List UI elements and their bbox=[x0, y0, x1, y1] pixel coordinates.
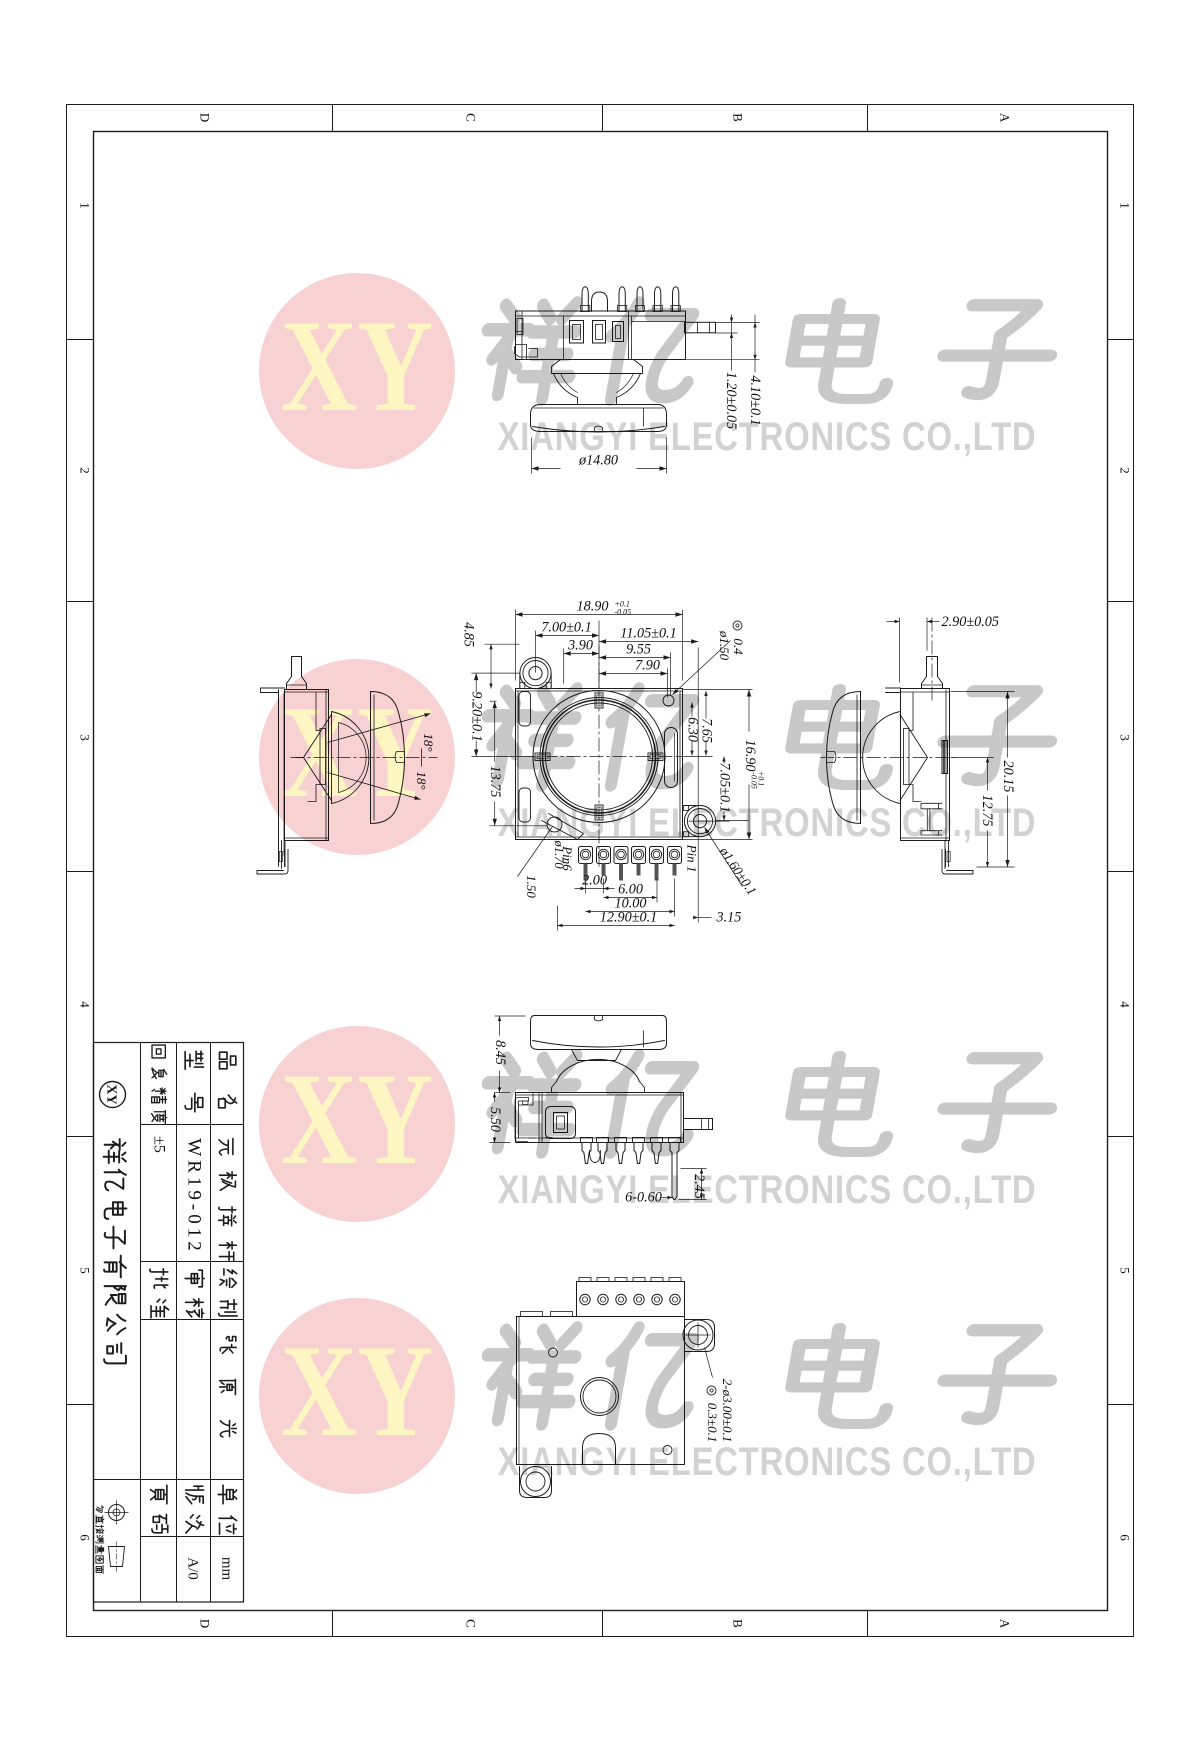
svg-text:XY: XY bbox=[281, 678, 434, 825]
svg-text:XIANGYI ELECTRONICS CO.,LTD: XIANGYI ELECTRONICS CO.,LTD bbox=[498, 1439, 1037, 1484]
svg-text:XY: XY bbox=[281, 1045, 434, 1192]
svg-text:XIANGYI ELECTRONICS CO.,LTD: XIANGYI ELECTRONICS CO.,LTD bbox=[498, 414, 1037, 459]
svg-text:XIANGYI ELECTRONICS CO.,LTD: XIANGYI ELECTRONICS CO.,LTD bbox=[498, 800, 1037, 845]
svg-text:XY: XY bbox=[281, 292, 434, 439]
svg-text:XY: XY bbox=[281, 1317, 434, 1464]
svg-text:XIANGYI ELECTRONICS CO.,LTD: XIANGYI ELECTRONICS CO.,LTD bbox=[498, 1167, 1037, 1212]
